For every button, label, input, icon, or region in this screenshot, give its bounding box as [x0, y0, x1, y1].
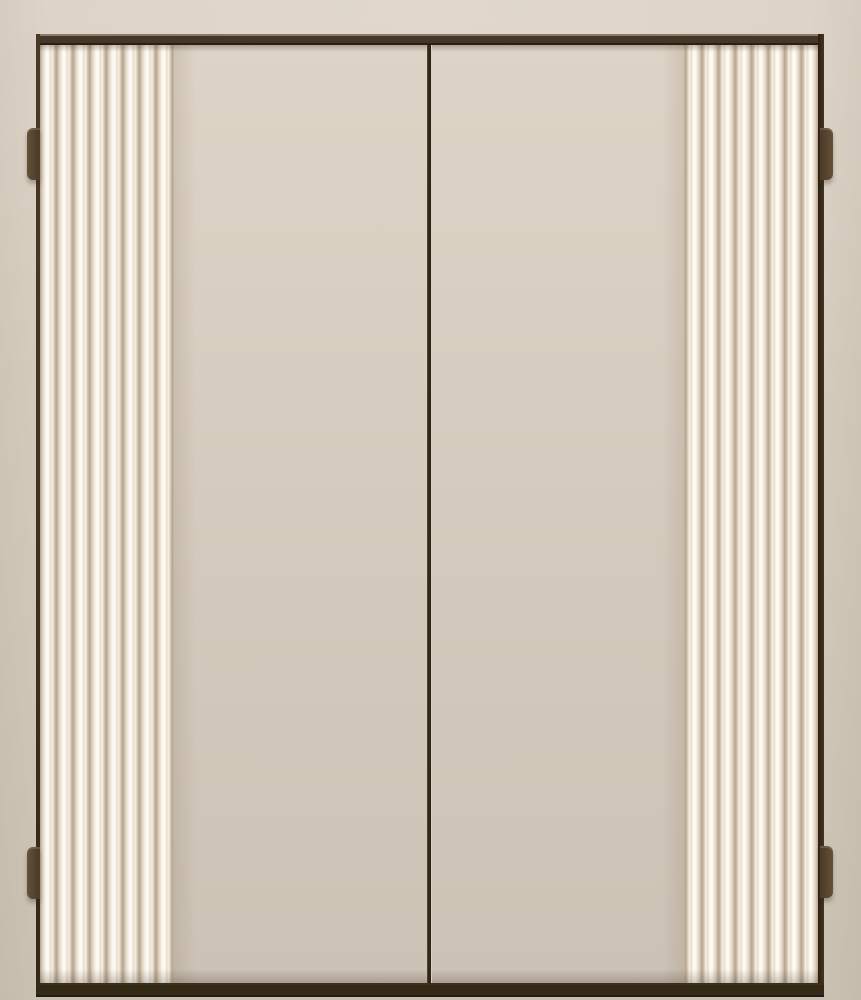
left-door-fluted-panel — [40, 45, 174, 983]
hinge-bottom-right — [820, 846, 833, 898]
hinge-bottom-left — [27, 847, 40, 899]
right-door-flat-panel — [432, 45, 684, 983]
center-door-seam — [427, 45, 432, 983]
hinge-top-right — [820, 128, 833, 180]
left-door-flat-panel — [174, 45, 427, 983]
hinge-top-left — [27, 128, 40, 180]
cabinet-top-rail — [36, 34, 824, 45]
right-door — [432, 45, 818, 983]
left-door — [40, 45, 427, 983]
room-wall — [0, 0, 861, 1000]
right-door-fluted-panel — [684, 45, 818, 983]
cabinet-bottom-rail — [36, 983, 824, 997]
